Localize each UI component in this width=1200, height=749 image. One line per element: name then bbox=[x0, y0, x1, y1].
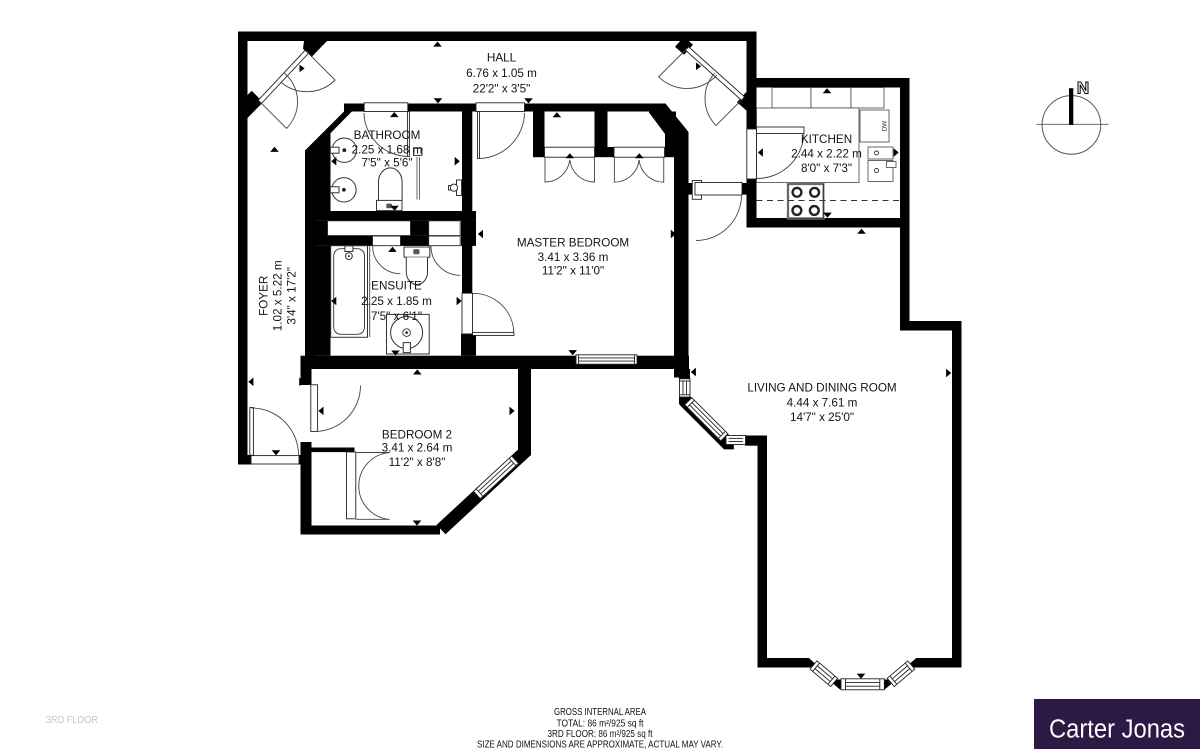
svg-text:1.02 x 5.22 m: 1.02 x 5.22 m bbox=[271, 260, 284, 331]
svg-text:KITCHEN: KITCHEN bbox=[801, 133, 852, 146]
svg-text:SIZE AND DIMENSIONS ARE APPROX: SIZE AND DIMENSIONS ARE APPROXIMATE, ACT… bbox=[477, 739, 723, 749]
svg-text:3RD FLOOR: 3RD FLOOR bbox=[46, 714, 98, 726]
svg-text:3.41 x 3.36 m: 3.41 x 3.36 m bbox=[538, 251, 609, 264]
svg-text:3RD FLOOR: 86 m²/925 sq ft: 3RD FLOOR: 86 m²/925 sq ft bbox=[548, 729, 653, 740]
svg-text:2.25 x 1.85 m: 2.25 x 1.85 m bbox=[361, 295, 432, 308]
svg-text:GROSS INTERNAL AREA: GROSS INTERNAL AREA bbox=[554, 707, 646, 718]
svg-text:TOTAL: 86 m²/925 sq ft: TOTAL: 86 m²/925 sq ft bbox=[557, 718, 644, 729]
svg-text:DW: DW bbox=[882, 121, 889, 132]
svg-text:ENSUITE: ENSUITE bbox=[371, 279, 422, 292]
svg-text:3.41 x 2.64 m: 3.41 x 2.64 m bbox=[382, 442, 453, 455]
svg-text:BEDROOM 2: BEDROOM 2 bbox=[382, 428, 452, 441]
svg-text:FOYER: FOYER bbox=[257, 276, 270, 316]
svg-text:11'2" x 11'0": 11'2" x 11'0" bbox=[542, 264, 604, 277]
svg-text:4.44 x 7.61 m: 4.44 x 7.61 m bbox=[787, 396, 858, 409]
svg-text:8'0" x 7'3": 8'0" x 7'3" bbox=[801, 162, 852, 175]
svg-text:LIVING AND DINING ROOM: LIVING AND DINING ROOM bbox=[747, 381, 896, 394]
svg-text:7'5" x 5'6": 7'5" x 5'6" bbox=[361, 157, 412, 170]
svg-text:Carter Jonas: Carter Jonas bbox=[1049, 716, 1185, 744]
svg-text:22'2" x 3'5": 22'2" x 3'5" bbox=[473, 83, 531, 96]
svg-text:MASTER BEDROOM: MASTER BEDROOM bbox=[517, 237, 629, 250]
svg-text:HALL: HALL bbox=[487, 51, 517, 64]
svg-text:11'2" x 8'8": 11'2" x 8'8" bbox=[389, 456, 446, 469]
svg-text:14'7" x 25'0": 14'7" x 25'0" bbox=[790, 411, 854, 424]
svg-text:BATHROOM: BATHROOM bbox=[354, 129, 421, 142]
svg-text:N: N bbox=[1077, 79, 1089, 98]
svg-text:7'5" x 6'1": 7'5" x 6'1" bbox=[371, 310, 422, 323]
svg-text:2.44 x 2.22 m: 2.44 x 2.22 m bbox=[791, 148, 862, 161]
svg-text:2.25 x 1.68 m: 2.25 x 1.68 m bbox=[352, 143, 423, 156]
svg-text:3'4" x 17'2": 3'4" x 17'2" bbox=[286, 267, 299, 325]
svg-text:6.76 x 1.05 m: 6.76 x 1.05 m bbox=[466, 67, 537, 80]
